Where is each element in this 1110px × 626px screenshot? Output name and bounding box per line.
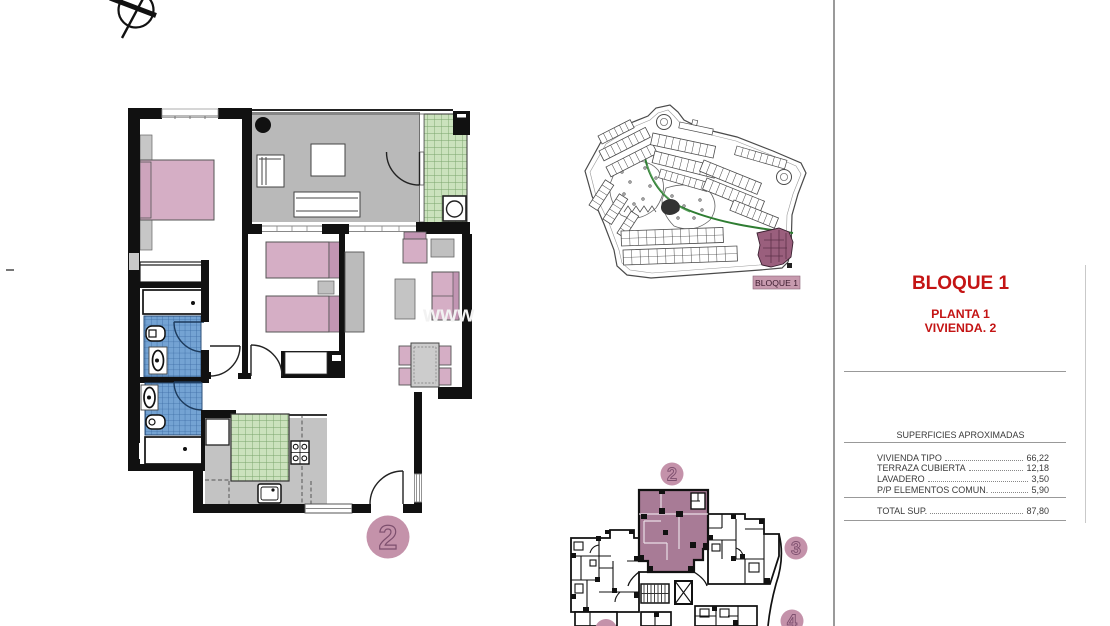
svg-text:4: 4 bbox=[787, 612, 797, 626]
svg-text:2: 2 bbox=[379, 519, 398, 557]
svg-text:2: 2 bbox=[667, 465, 677, 485]
svg-text:www: www bbox=[422, 302, 475, 327]
svg-text:BLOQUE 1: BLOQUE 1 bbox=[755, 278, 798, 288]
svg-text:3: 3 bbox=[791, 539, 801, 559]
